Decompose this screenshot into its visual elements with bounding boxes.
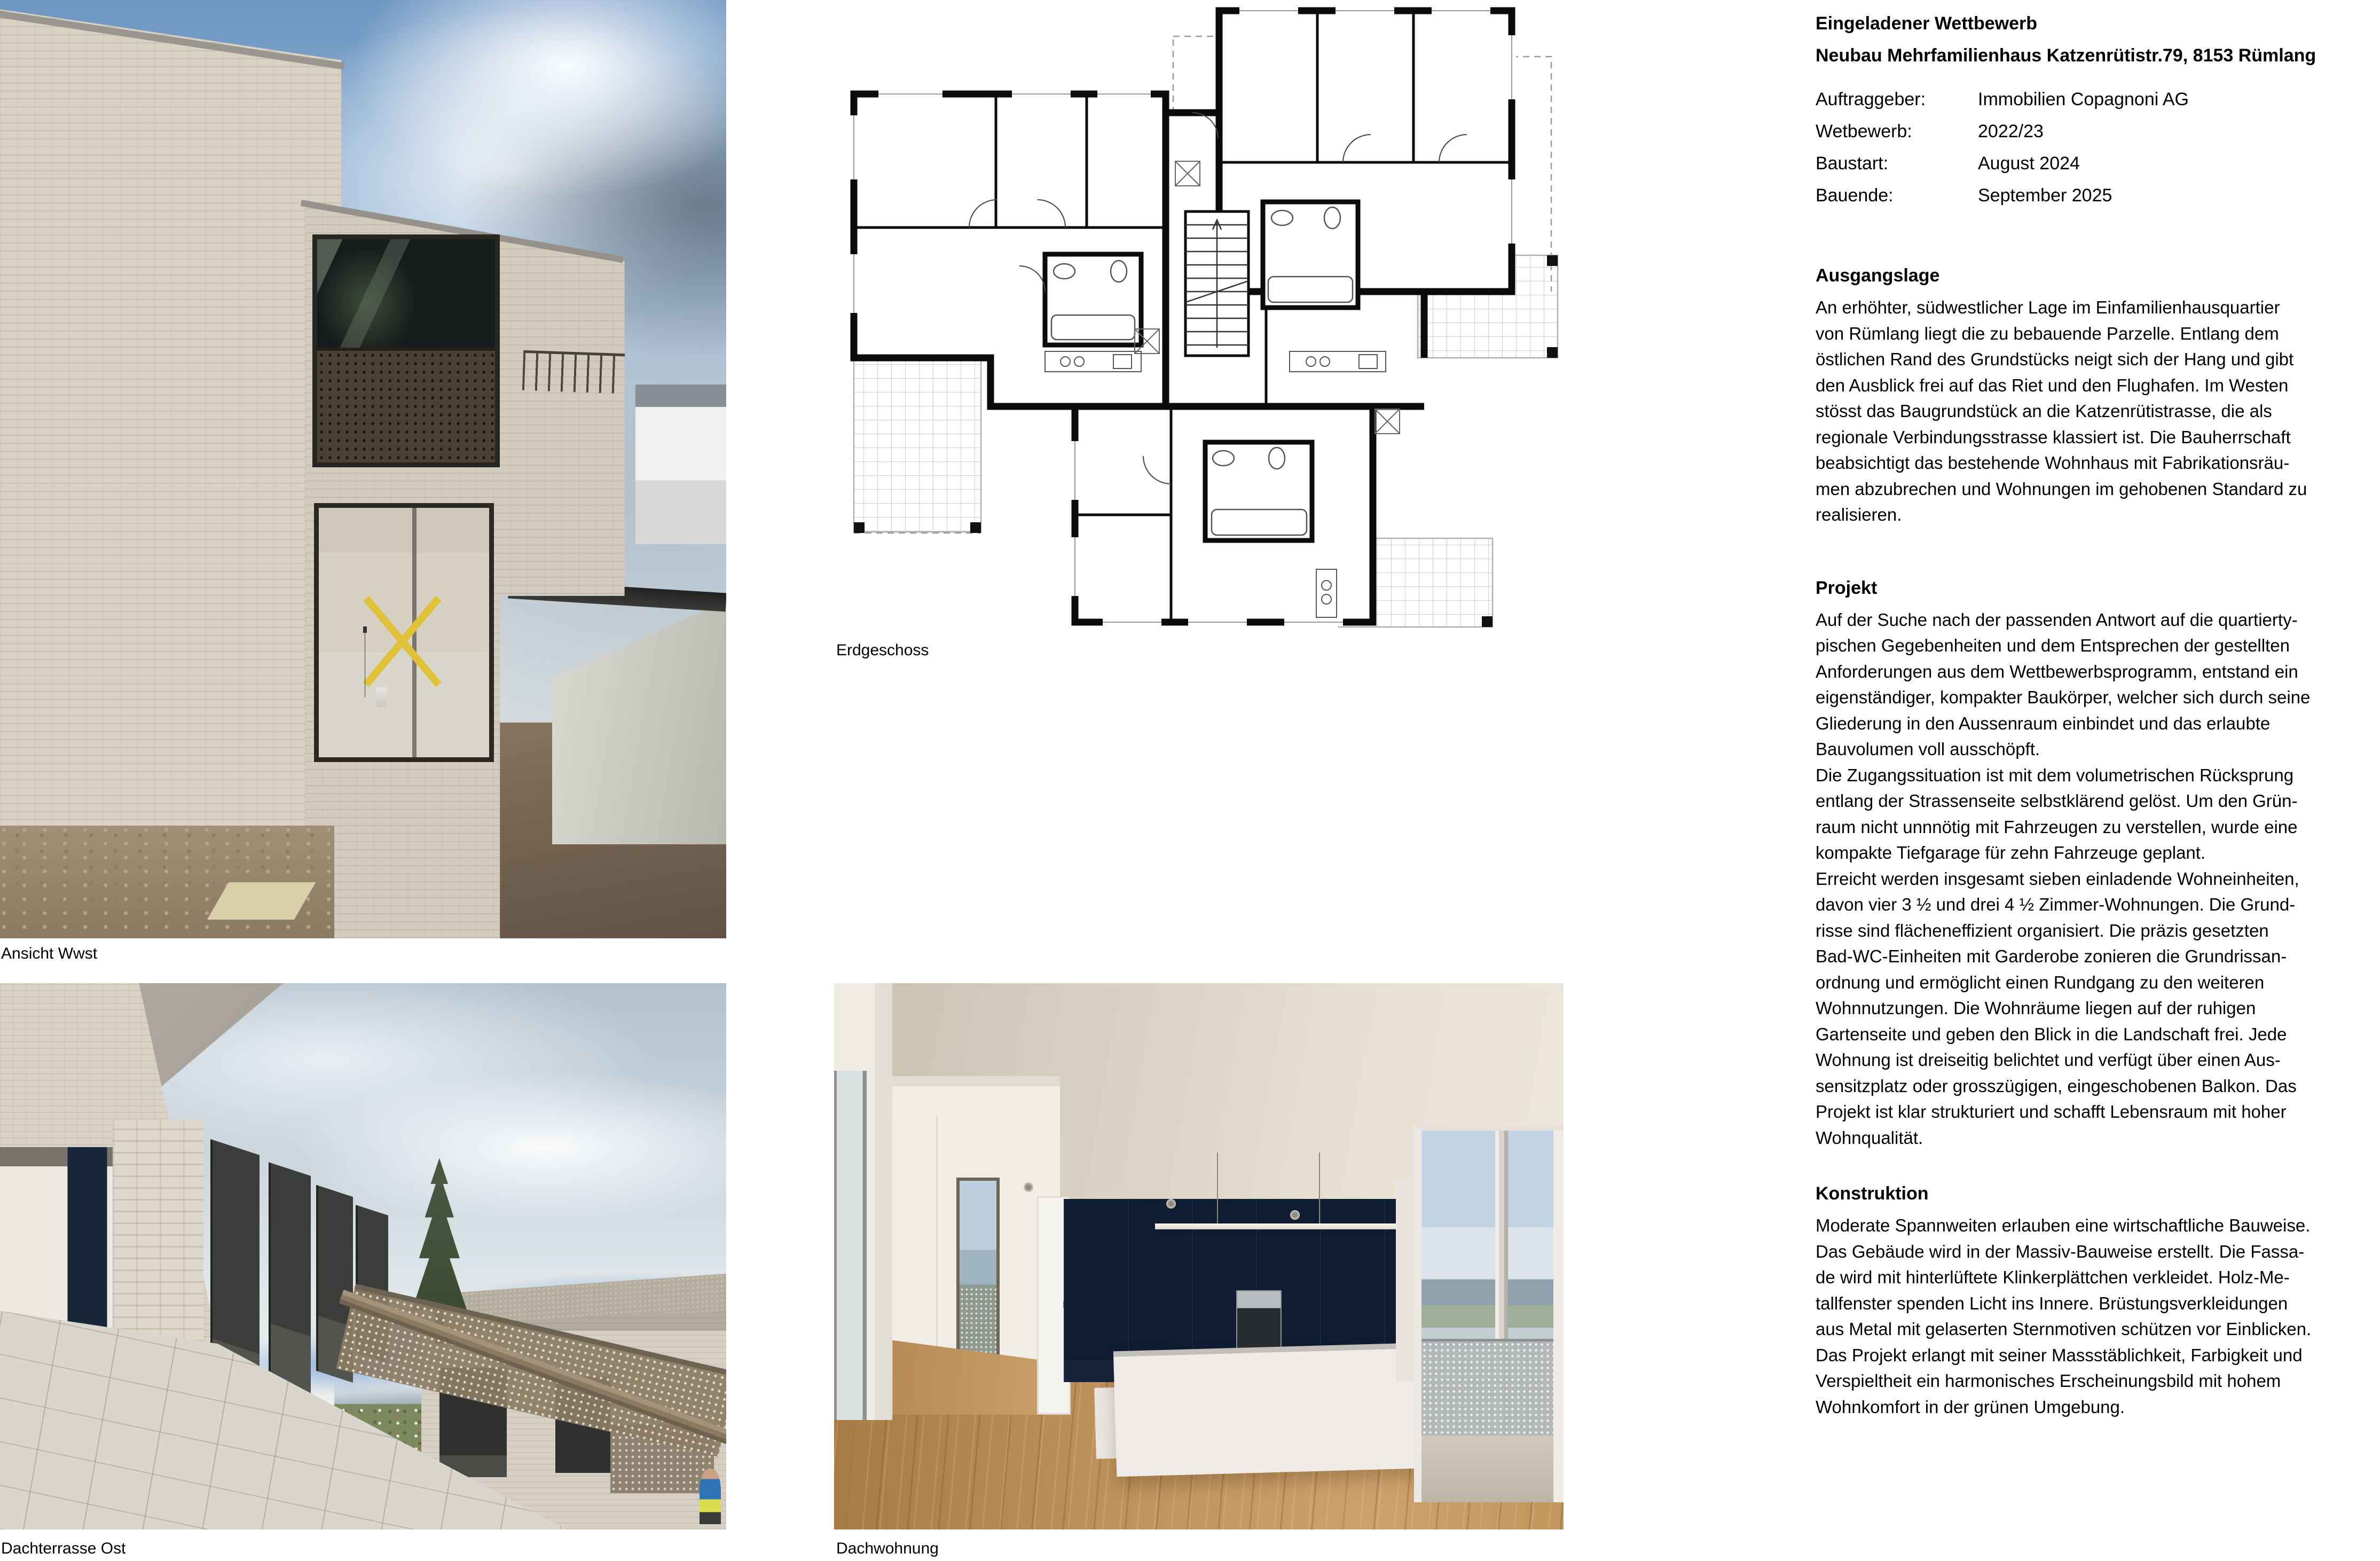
floor-plan: [836, 3, 1565, 636]
bucket: [376, 687, 387, 707]
construction-worker: [700, 1469, 721, 1524]
photo-roof-terrace: [0, 983, 726, 1529]
section-heading-konstruktion: Konstruktion: [1816, 1181, 2379, 1206]
brick-facade-side: [0, 0, 341, 924]
meta-value: August 2024: [1978, 147, 2080, 179]
floor-plan-drawing: [836, 3, 1565, 636]
section-body-konstruktion: Moderate Spannweiten erlauben eine wirts…: [1816, 1213, 2379, 1420]
meta-value: September 2025: [1978, 179, 2112, 211]
meta-row-bauende: Bauende: September 2025: [1816, 179, 2379, 211]
plan-stair: [1185, 211, 1248, 356]
perforated-balustrade: [317, 348, 495, 462]
background-house: [635, 385, 726, 544]
section-body-projekt: Auf der Suche nach der passenden Antwort…: [1816, 607, 2379, 1151]
meta-label: Baustart:: [1816, 147, 1978, 179]
caption-ansicht: Ansicht Wwst: [1, 944, 97, 963]
meta-row-baustart: Baustart: August 2024: [1816, 147, 2379, 179]
caption-dachwohnung: Dachwohnung: [836, 1539, 939, 1558]
wall-pier: [1396, 1180, 1414, 1382]
lower-opening: [314, 503, 494, 762]
meta-row-auftraggeber: Auftraggeber: Immobilien Copagnoni AG: [1816, 83, 2379, 115]
caption-terrasse: Dachterrasse Ost: [1, 1539, 125, 1558]
light-wire: [1319, 1152, 1320, 1223]
survey-tripod: [363, 632, 367, 697]
meta-value: 2022/23: [1978, 115, 2044, 147]
meta-value: Immobilien Copagnoni AG: [1978, 83, 2189, 115]
caption-erdgeschoss: Erdgeschoss: [836, 641, 929, 660]
upper-window: [312, 234, 500, 467]
competition-type-title: Eingeladener Wettbewerb: [1816, 7, 2379, 40]
corridor-floor: [892, 1340, 1060, 1415]
meta-label: Wetbewerb:: [1816, 115, 1978, 147]
project-title: Neubau Mehrfamilienhaus Katzenrütistr.79…: [1816, 40, 2379, 72]
meta-row-wettbewerb: Wetbewerb: 2022/23: [1816, 115, 2379, 147]
balcony-window: [1414, 1125, 1564, 1502]
meta-label: Auftraggeber:: [1816, 83, 1978, 115]
corridor: [892, 1076, 1060, 1415]
wardrobe: [892, 1117, 938, 1354]
section-heading-ausgangslage: Ausgangslage: [1816, 263, 2379, 288]
photo-attic-interior: [834, 983, 1564, 1529]
window-door: [269, 1162, 311, 1405]
light-wire: [1217, 1152, 1218, 1223]
section-body-ausgangslage: An erhöhter, südwestlicher Lage im Einfa…: [1816, 295, 2379, 528]
ceiling-spot: [1166, 1199, 1176, 1209]
left-window: [834, 1071, 867, 1421]
project-meta: Auftraggeber: Immobilien Copagnoni AG We…: [1816, 83, 2379, 211]
roof-terrace-railing: [522, 350, 625, 394]
section-heading-projekt: Projekt: [1816, 575, 2379, 601]
meta-label: Bauende:: [1816, 179, 1978, 211]
balcony-floor: [1421, 1436, 1564, 1502]
text-column: Eingeladener Wettbewerb Neubau Mehrfamil…: [1816, 7, 2379, 1420]
pendant-light: [1155, 1223, 1418, 1229]
ceiling-spot: [1290, 1210, 1300, 1220]
photo-facade-ansicht: [0, 0, 726, 938]
window-frame: [1553, 1131, 1564, 1502]
perforated-balcony-railing: [1421, 1339, 1564, 1438]
